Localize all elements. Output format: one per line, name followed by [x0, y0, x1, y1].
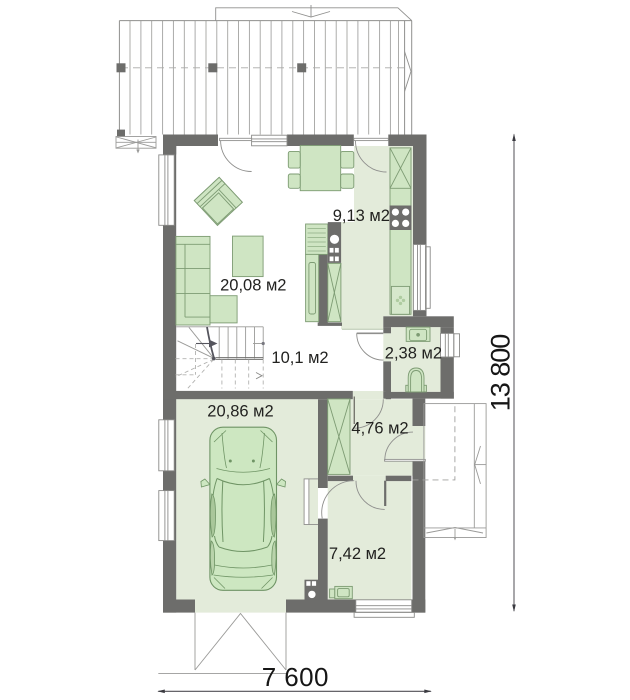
svg-text:4,76 м2: 4,76 м2	[351, 420, 408, 438]
svg-text:10,1 м2: 10,1 м2	[271, 349, 328, 367]
svg-text:7,42 м2: 7,42 м2	[329, 545, 386, 563]
svg-text:9,13 м2: 9,13 м2	[333, 207, 390, 225]
svg-text:7 600: 7 600	[262, 662, 329, 692]
svg-text:20,86 м2: 20,86 м2	[207, 403, 273, 421]
svg-text:2,38 м2: 2,38 м2	[385, 345, 442, 363]
svg-text:13 800: 13 800	[486, 335, 516, 412]
svg-text:20,08 м2: 20,08 м2	[220, 276, 286, 294]
